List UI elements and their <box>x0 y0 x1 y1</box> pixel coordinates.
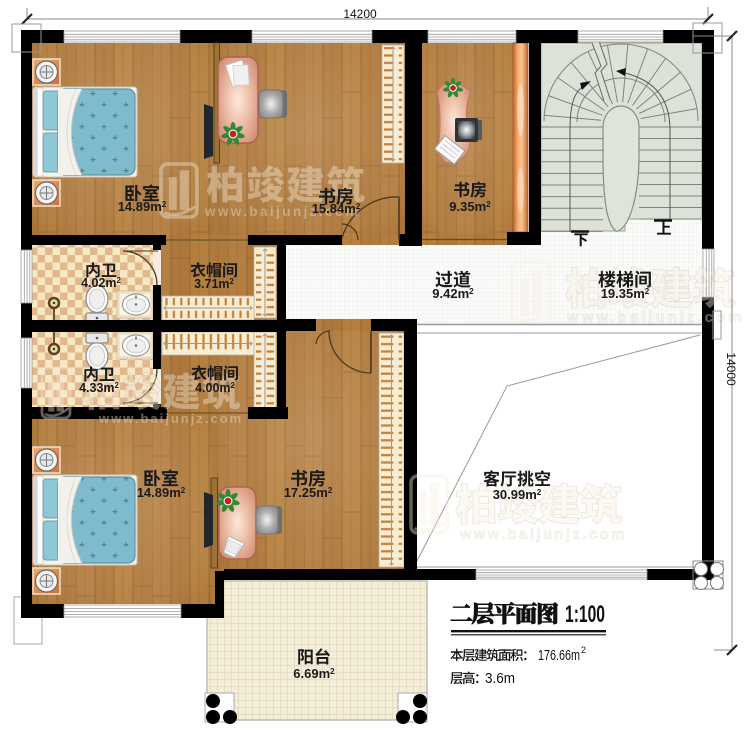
svg-text:4.00m2: 4.00m2 <box>195 381 235 395</box>
svg-text:14200: 14200 <box>343 7 377 21</box>
svg-text:9.35m2: 9.35m2 <box>449 199 491 214</box>
svg-text:9.42m2: 9.42m2 <box>432 286 474 301</box>
svg-text:2: 2 <box>581 645 586 655</box>
svg-text:www.baijunjz.com: www.baijunjz.com <box>566 309 744 326</box>
svg-text:3.6m: 3.6m <box>485 671 515 687</box>
svg-text:14.89m2: 14.89m2 <box>137 485 186 500</box>
svg-text:4.33m2: 4.33m2 <box>79 381 119 395</box>
svg-text:3.71m2: 3.71m2 <box>194 277 234 291</box>
svg-text:176.66m: 176.66m <box>538 648 580 664</box>
svg-text:17.25m2: 17.25m2 <box>284 485 333 500</box>
svg-text:www.baijunjz.com: www.baijunjz.com <box>98 411 243 426</box>
svg-text:1:100: 1:100 <box>565 601 605 628</box>
svg-text:4.02m2: 4.02m2 <box>81 276 121 290</box>
svg-text:30.99m2: 30.99m2 <box>493 487 542 502</box>
svg-text:6.69m2: 6.69m2 <box>293 666 335 681</box>
svg-text:14.89m2: 14.89m2 <box>118 199 167 214</box>
svg-text:19.35m2: 19.35m2 <box>601 286 650 301</box>
svg-text:15.84m2: 15.84m2 <box>312 201 361 216</box>
svg-text:www.baijunjz.com: www.baijunjz.com <box>459 527 627 543</box>
svg-text:14000: 14000 <box>724 352 738 386</box>
